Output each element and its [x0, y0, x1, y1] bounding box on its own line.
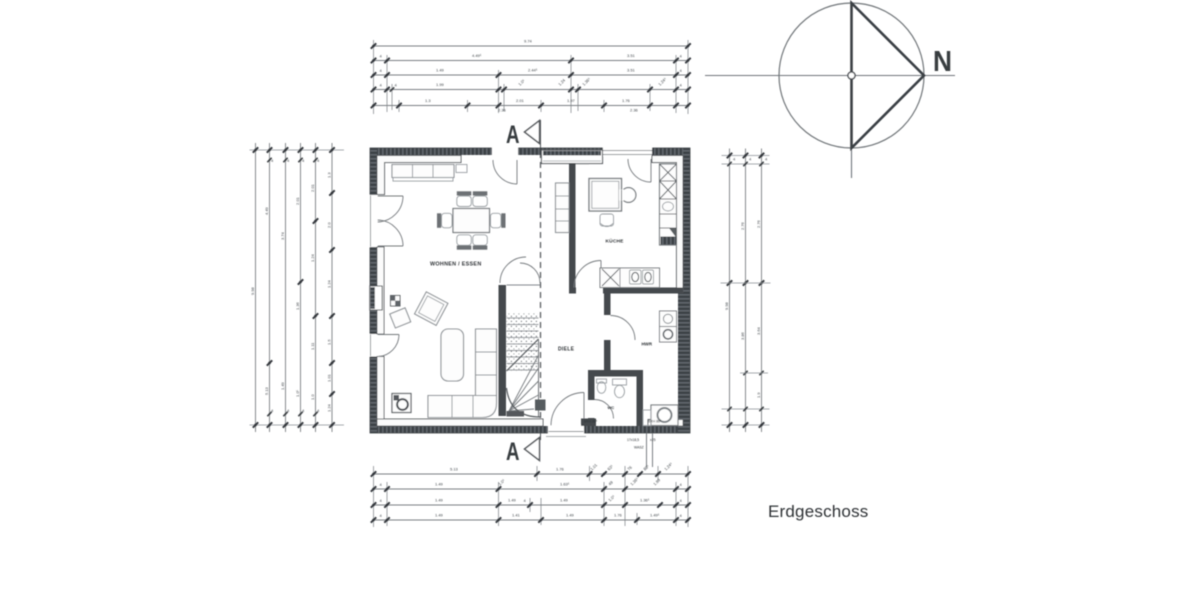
svg-text:4: 4	[524, 498, 527, 503]
svg-text:4: 4	[733, 157, 736, 162]
svg-text:2.01: 2.01	[295, 196, 300, 205]
svg-text:1.01: 1.01	[327, 373, 332, 382]
svg-text:2.01: 2.01	[310, 183, 315, 192]
svg-text:1.76: 1.76	[622, 98, 631, 103]
svg-text:1.24: 1.24	[310, 253, 315, 262]
svg-text:1.36: 1.36	[295, 301, 300, 310]
svg-text:4: 4	[749, 157, 752, 162]
svg-text:4: 4	[271, 158, 274, 163]
svg-text:4: 4	[380, 83, 383, 88]
svg-text:9.98: 9.98	[724, 301, 729, 310]
svg-text:2.0: 2.0	[327, 222, 332, 228]
svg-text:A: A	[506, 121, 520, 149]
svg-text:1.49: 1.49	[280, 381, 285, 390]
svg-text:1.3: 1.3	[327, 172, 332, 178]
svg-text:4.49: 4.49	[264, 206, 269, 215]
svg-text:4: 4	[302, 158, 305, 163]
svg-text:Erdgeschoss: Erdgeschoss	[768, 502, 868, 521]
svg-text:3.86: 3.86	[740, 331, 745, 340]
svg-text:1.0: 1.0	[310, 394, 315, 400]
svg-text:1.99: 1.99	[436, 82, 445, 87]
svg-text:4: 4	[287, 408, 290, 413]
svg-text:1.0⁵: 1.0⁵	[497, 478, 506, 487]
svg-text:1.0⁵: 1.0⁵	[295, 389, 300, 397]
svg-text:4: 4	[680, 54, 683, 59]
svg-text:4: 4	[380, 498, 383, 503]
svg-text:5.13: 5.13	[264, 386, 269, 395]
svg-text:1.99: 1.99	[652, 477, 662, 487]
svg-text:4: 4	[302, 408, 305, 413]
svg-text:5.13: 5.13	[450, 467, 459, 472]
svg-text:4: 4	[680, 83, 683, 88]
svg-text:1.24: 1.24	[557, 77, 567, 87]
svg-text:3.64: 3.64	[756, 326, 761, 335]
svg-text:2.01: 2.01	[516, 98, 525, 103]
svg-text:1.0⁵: 1.0⁵	[607, 494, 616, 503]
svg-text:2.44⁵: 2.44⁵	[528, 68, 538, 73]
svg-text:17x18,5: 17x18,5	[627, 438, 639, 442]
svg-text:1.49⁵: 1.49⁵	[650, 513, 660, 518]
svg-text:1.24: 1.24	[327, 403, 332, 412]
svg-text:1.97: 1.97	[567, 98, 576, 103]
svg-text:1.5: 1.5	[327, 339, 332, 345]
svg-text:2.36: 2.36	[630, 108, 639, 113]
svg-text:88⁵: 88⁵	[642, 463, 650, 471]
svg-text:1.36⁵: 1.36⁵	[629, 476, 639, 486]
svg-text:WC: WC	[608, 405, 615, 410]
svg-text:4: 4	[317, 408, 320, 413]
svg-text:4: 4	[680, 68, 683, 73]
svg-text:DIELE: DIELE	[558, 347, 575, 353]
svg-text:1.76: 1.76	[614, 513, 623, 518]
svg-text:1.49: 1.49	[435, 482, 444, 487]
svg-text:76: 76	[626, 464, 633, 471]
svg-text:1.36⁵: 1.36⁵	[640, 498, 650, 503]
svg-text:1.01: 1.01	[589, 462, 599, 472]
svg-text:4: 4	[765, 157, 768, 162]
svg-text:1.49: 1.49	[560, 498, 569, 503]
svg-text:4: 4	[380, 54, 383, 59]
svg-text:4: 4	[395, 83, 398, 88]
svg-text:4: 4	[680, 482, 683, 487]
svg-text:4: 4	[380, 68, 383, 73]
svg-text:4: 4	[680, 498, 683, 503]
svg-text:4: 4	[271, 408, 274, 413]
svg-text:1.9: 1.9	[756, 392, 761, 398]
svg-text:1.49: 1.49	[566, 513, 575, 518]
svg-text:A: A	[506, 438, 520, 466]
svg-text:x25: x25	[650, 438, 656, 442]
svg-text:3.51: 3.51	[627, 68, 636, 73]
svg-text:1.49: 1.49	[436, 68, 445, 73]
svg-text:KÜCHE: KÜCHE	[606, 238, 625, 245]
svg-text:WASZ: WASZ	[634, 446, 644, 450]
svg-text:4.49⁵: 4.49⁵	[472, 53, 482, 58]
svg-text:1.11: 1.11	[310, 342, 315, 350]
svg-text:1.24: 1.24	[327, 279, 332, 288]
svg-text:4: 4	[380, 482, 383, 487]
svg-text:3.51: 3.51	[627, 53, 636, 58]
svg-text:4: 4	[287, 158, 290, 163]
svg-text:4: 4	[680, 513, 683, 518]
svg-text:1.49: 1.49	[508, 498, 517, 503]
svg-text:1.0⁵: 1.0⁵	[517, 78, 526, 87]
svg-text:4: 4	[317, 158, 320, 163]
svg-text:3.74: 3.74	[280, 231, 285, 240]
svg-text:9.98: 9.98	[250, 286, 255, 295]
svg-text:49: 49	[607, 479, 614, 486]
svg-text:1.41: 1.41	[512, 513, 521, 518]
svg-text:1.76: 1.76	[556, 467, 565, 472]
svg-text:HWR: HWR	[642, 342, 653, 347]
svg-text:63⁵: 63⁵	[606, 463, 614, 471]
svg-text:4: 4	[380, 513, 383, 518]
svg-text:BRH 86⁵: BRH 86⁵	[584, 420, 598, 424]
svg-text:1.49: 1.49	[435, 513, 444, 518]
svg-text:1.49: 1.49	[435, 498, 444, 503]
svg-text:1.36⁵: 1.36⁵	[581, 76, 591, 86]
svg-text:N: N	[933, 46, 952, 78]
svg-text:2.76: 2.76	[756, 219, 761, 228]
svg-text:1.63⁵: 1.63⁵	[560, 482, 570, 487]
svg-text:2.76: 2.76	[740, 221, 745, 230]
svg-text:9.74: 9.74	[524, 39, 533, 44]
svg-text:BRH 86⁵: BRH 86⁵	[648, 420, 662, 424]
svg-text:1.24⁵: 1.24⁵	[663, 461, 673, 471]
svg-text:1.24⁵: 1.24⁵	[657, 76, 667, 86]
svg-text:2.36: 2.36	[498, 108, 507, 113]
svg-text:1.3: 1.3	[425, 98, 431, 103]
svg-text:WOHNEN / ESSEN: WOHNEN / ESSEN	[430, 262, 482, 268]
